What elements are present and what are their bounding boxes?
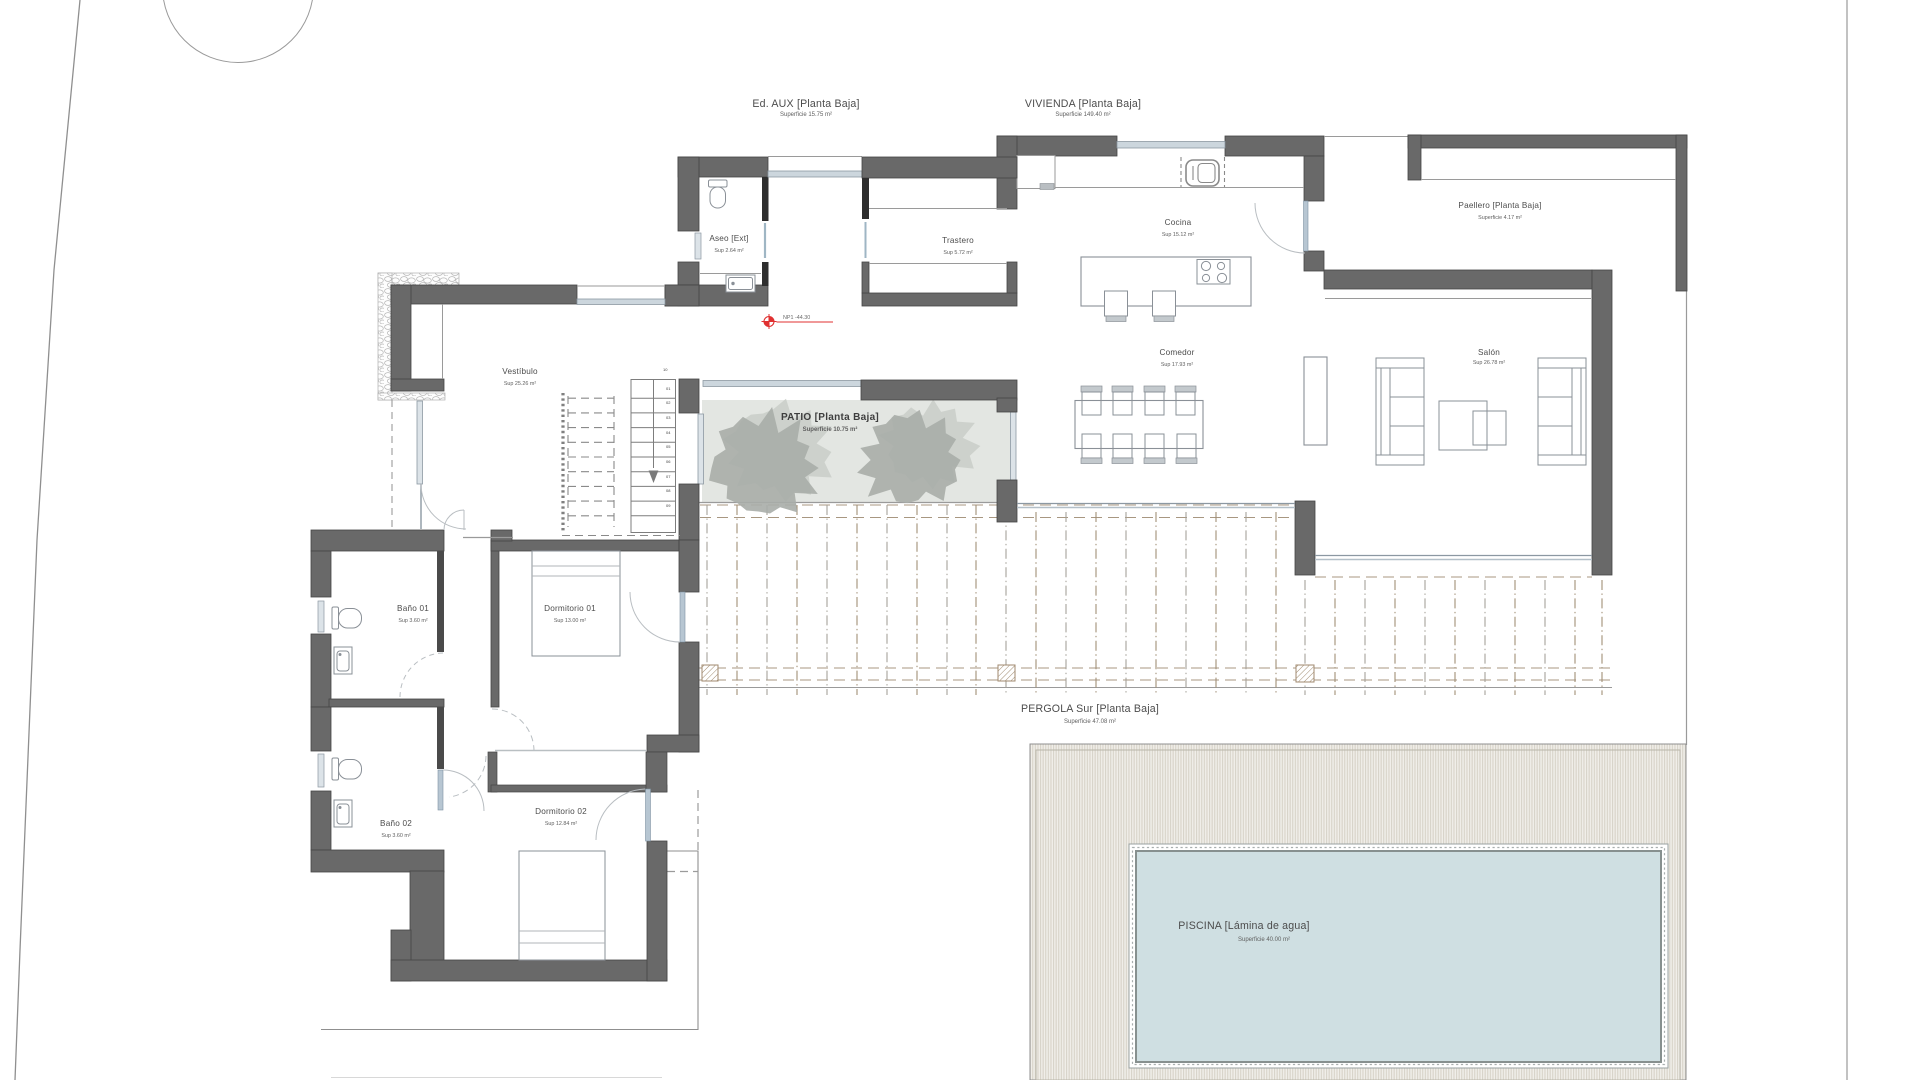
svg-text:Baño 01: Baño 01 — [397, 604, 429, 613]
svg-text:01: 01 — [666, 386, 671, 391]
svg-text:09: 09 — [666, 503, 671, 508]
svg-text:Trastero: Trastero — [942, 236, 974, 245]
svg-text:PISCINA [Lámina de agua]: PISCINA [Lámina de agua] — [1178, 920, 1309, 932]
svg-text:Superficie 10.75 m²: Superficie 10.75 m² — [803, 426, 858, 433]
svg-text:Sup 15.12 m²: Sup 15.12 m² — [1162, 232, 1195, 238]
svg-text:Superficie 15.75 m²: Superficie 15.75 m² — [780, 112, 832, 118]
svg-text:Paellero [Planta Baja]: Paellero [Planta Baja] — [1458, 201, 1541, 210]
svg-text:06: 06 — [666, 459, 671, 464]
svg-text:Comedor: Comedor — [1159, 348, 1194, 357]
svg-text:NP1 -44.30: NP1 -44.30 — [783, 315, 810, 321]
svg-text:Dormitorio 02: Dormitorio 02 — [535, 807, 587, 816]
svg-text:Sup 13.00 m²: Sup 13.00 m² — [554, 618, 587, 624]
svg-text:03: 03 — [666, 415, 671, 420]
svg-text:PERGOLA Sur [Planta Baja]: PERGOLA Sur [Planta Baja] — [1021, 703, 1159, 715]
svg-text:Superficie 149.40 m²: Superficie 149.40 m² — [1055, 112, 1110, 118]
svg-text:Sup 3.60 m²: Sup 3.60 m² — [381, 833, 411, 839]
svg-text:08: 08 — [666, 488, 671, 493]
svg-text:Superficie 4.17 m²: Superficie 4.17 m² — [1478, 215, 1522, 221]
svg-text:05: 05 — [666, 444, 671, 449]
svg-text:Vestíbulo: Vestíbulo — [502, 367, 538, 376]
svg-text:PATIO [Planta Baja]: PATIO [Planta Baja] — [781, 412, 879, 423]
svg-text:Sup 26.78 m²: Sup 26.78 m² — [1473, 360, 1506, 366]
svg-text:Superficie 47.08 m²: Superficie 47.08 m² — [1064, 719, 1116, 725]
svg-text:02: 02 — [666, 400, 671, 405]
svg-text:Sup 3.60 m²: Sup 3.60 m² — [398, 618, 428, 624]
svg-text:Dormitorio 01: Dormitorio 01 — [544, 604, 596, 613]
svg-text:Sup 5.72 m²: Sup 5.72 m² — [943, 250, 973, 256]
svg-text:Superficie 40.00 m²: Superficie 40.00 m² — [1238, 937, 1290, 943]
svg-text:07: 07 — [666, 474, 671, 479]
svg-text:VIVIENDA [Planta Baja]: VIVIENDA [Planta Baja] — [1025, 98, 1141, 110]
svg-text:Sup 25.26 m²: Sup 25.26 m² — [504, 381, 537, 387]
svg-text:Cocina: Cocina — [1165, 218, 1192, 227]
svg-text:Sup 17.93 m²: Sup 17.93 m² — [1161, 362, 1194, 368]
svg-text:04: 04 — [666, 430, 671, 435]
svg-text:Baño 02: Baño 02 — [380, 819, 412, 828]
svg-text:Sup 2.64 m²: Sup 2.64 m² — [714, 248, 744, 254]
svg-text:Ed. AUX [Planta Baja]: Ed. AUX [Planta Baja] — [752, 98, 859, 110]
svg-text:Salón: Salón — [1478, 348, 1500, 357]
svg-text:Sup 12.84 m²: Sup 12.84 m² — [545, 821, 578, 827]
svg-text:Aseo [Ext]: Aseo [Ext] — [709, 234, 748, 243]
svg-text:10: 10 — [663, 367, 668, 372]
